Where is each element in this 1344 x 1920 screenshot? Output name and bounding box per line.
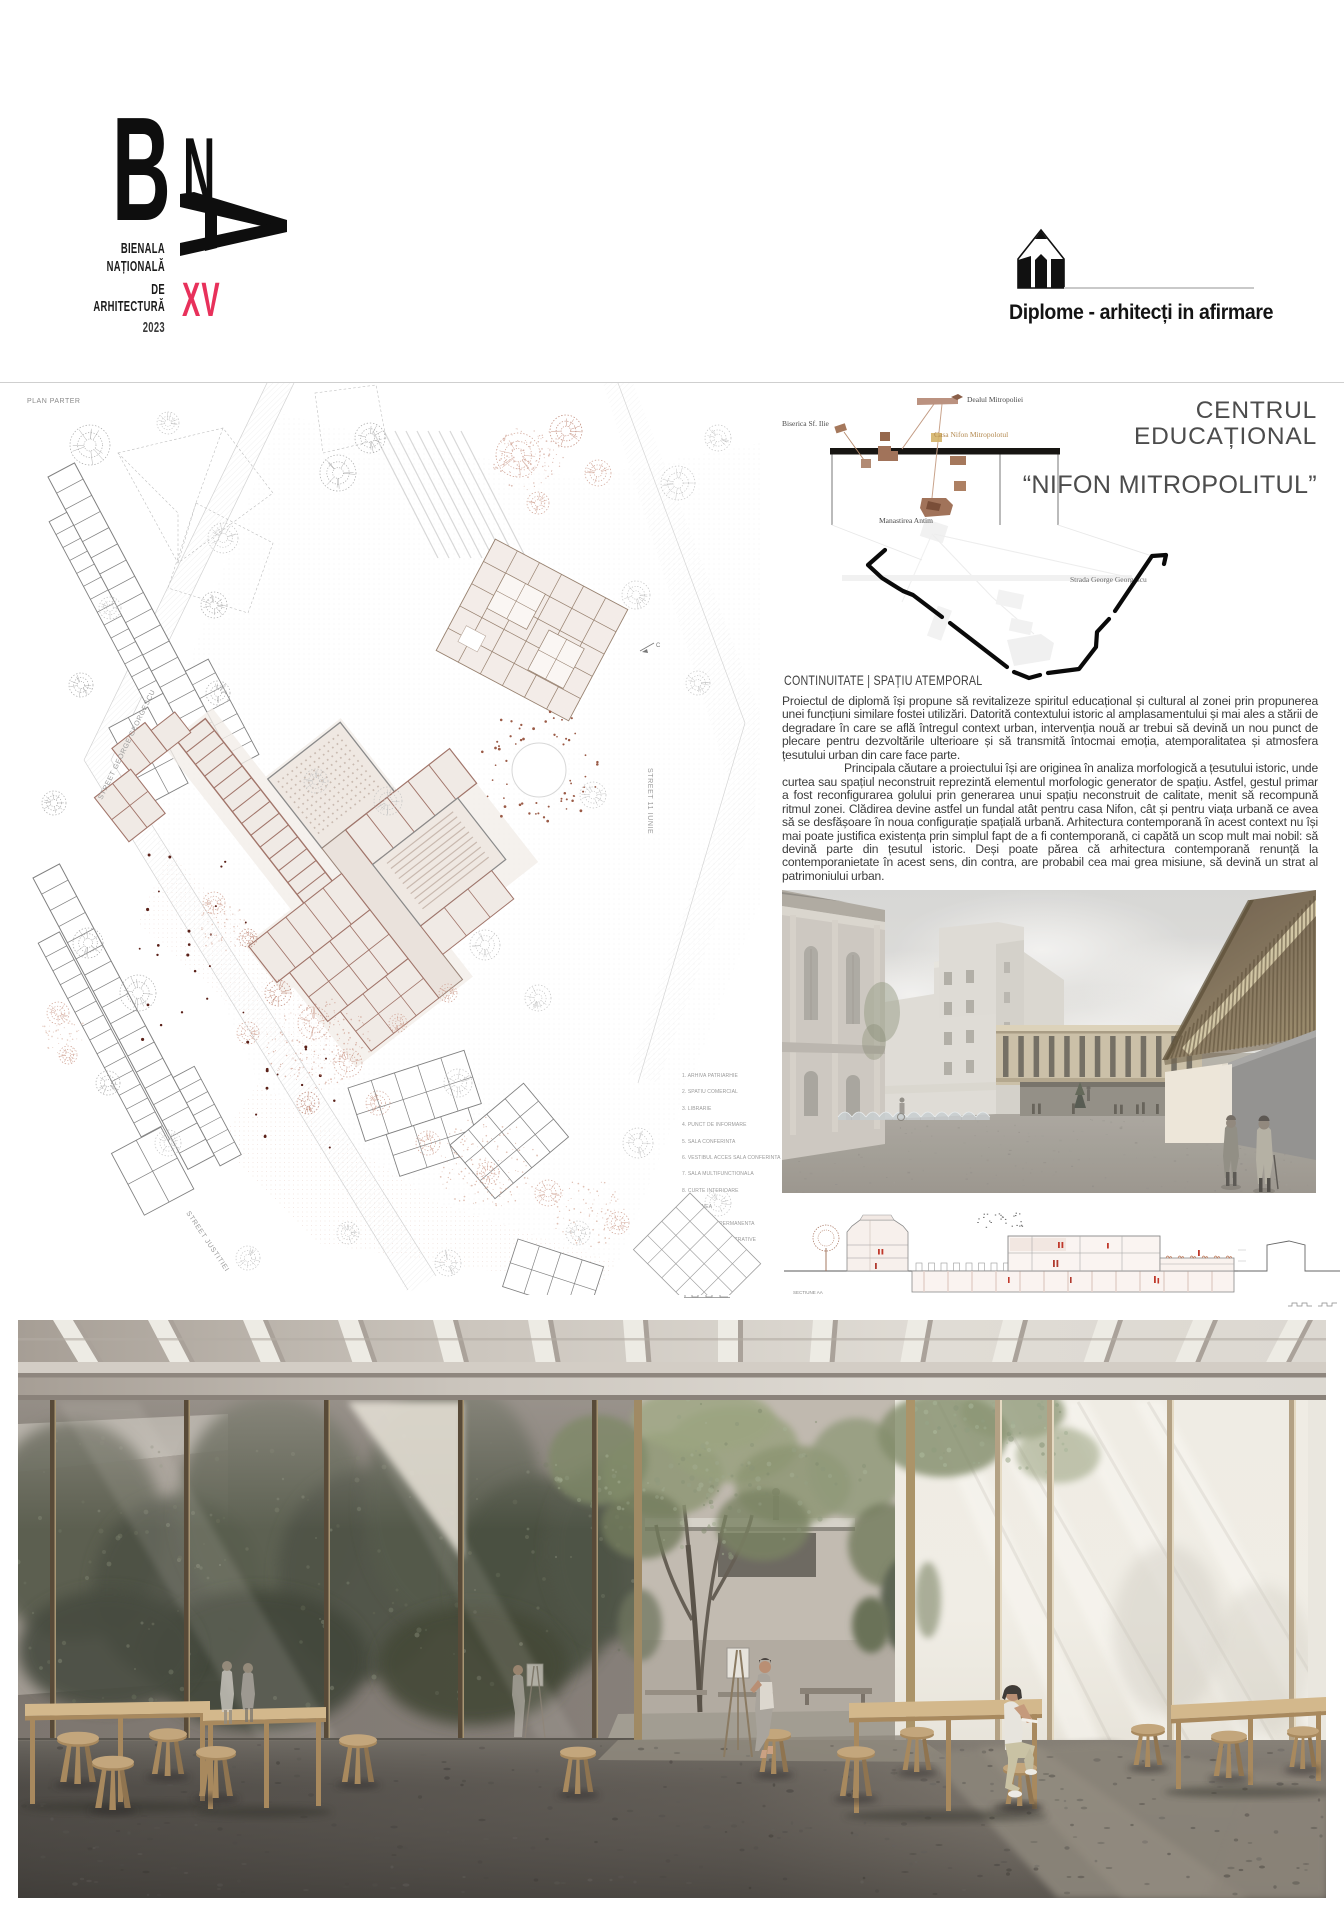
svg-text:PLAN PARTER: PLAN PARTER [27, 398, 80, 405]
svg-text:Biserica Sf. Ilie: Biserica Sf. Ilie [782, 419, 830, 428]
svg-text:Dealul Mitropoliei: Dealul Mitropoliei [967, 395, 1023, 404]
svg-text:Manastirea Antim: Manastirea Antim [879, 516, 933, 525]
svg-text:Casa Nifon Mitropolotul: Casa Nifon Mitropolotul [934, 430, 1008, 439]
svg-text:C: C [656, 643, 661, 649]
svg-text:STREET JUSTITIEI: STREET JUSTITIEI [184, 1210, 230, 1273]
svg-text:SECTIUNE AA: SECTIUNE AA [793, 1290, 823, 1295]
svg-text:STREET 11 IUNIE: STREET 11 IUNIE [646, 768, 653, 834]
